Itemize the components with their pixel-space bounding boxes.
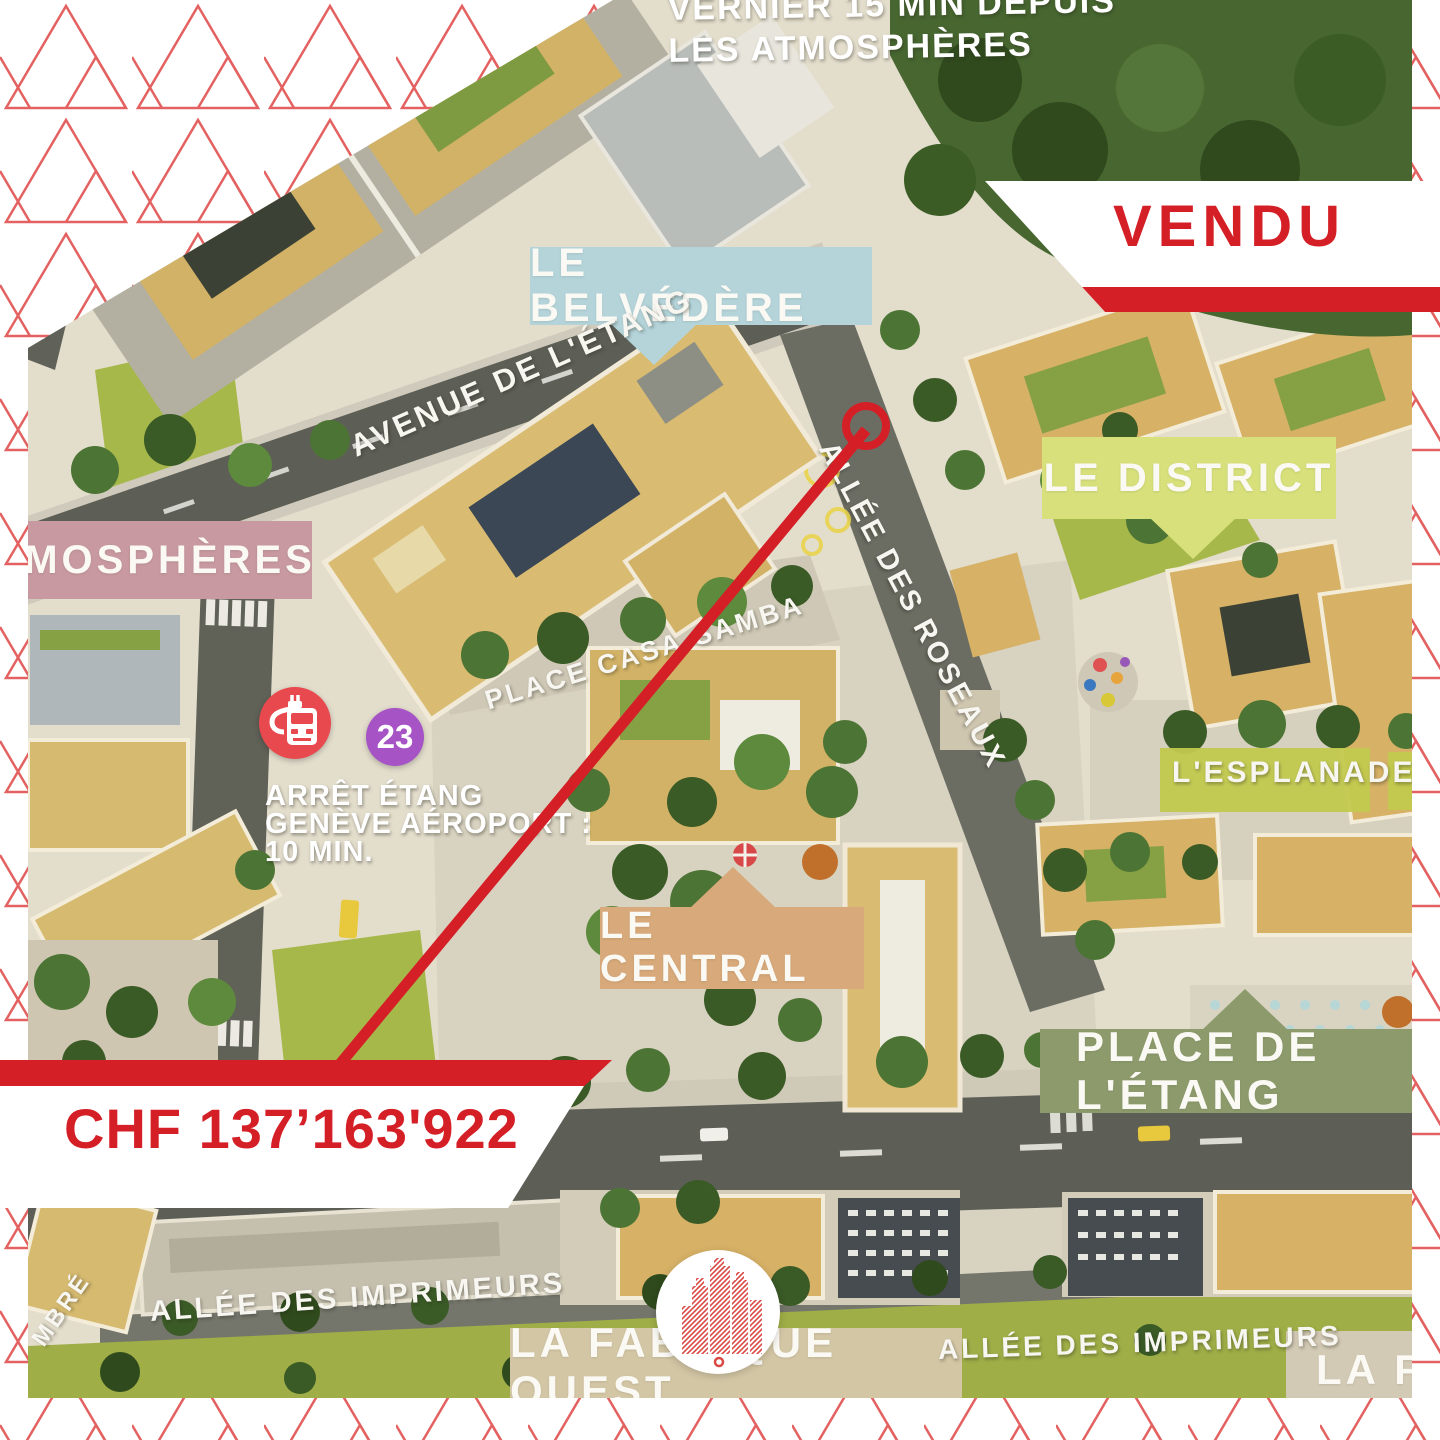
bus-icon	[259, 687, 331, 759]
tag-label: LE BELVÉDÈRE	[530, 241, 872, 331]
bus-line-23-badge: 23	[366, 708, 424, 766]
tag-label: LE CENTRAL	[600, 905, 864, 991]
tag-place-de-letang: PLACE DE L'ÉTANG	[1040, 1029, 1412, 1113]
price-bar	[0, 1060, 612, 1086]
logo-towers-icon	[656, 1250, 780, 1374]
tag-pointer	[689, 867, 777, 909]
tag-label: PLACE DE L'ÉTANG	[1076, 1023, 1412, 1119]
tag-label: LA FA	[1316, 1346, 1412, 1394]
travel-time-caption: VERNIER 15 MIN DEPUIS LES ATMOSPHÈRES	[667, 0, 1117, 72]
bus-stop-text: ARRÊT ÉTANG GENÈVE AÉROPORT : 10 MIN.	[265, 782, 592, 866]
tag-les-atmospheres: MOSPHÈRES	[28, 521, 312, 599]
marketing-map-image: VERNIER 15 MIN DEPUIS LES ATMOSPHÈRES LE…	[0, 0, 1440, 1440]
tag-pointer	[1149, 517, 1237, 559]
bus-stop-line3: 10 MIN.	[265, 838, 592, 866]
tag-le-district: LE DISTRICT	[1042, 437, 1336, 519]
tag-pointer	[1201, 989, 1289, 1031]
price-label: CHF 137’163'922	[64, 1096, 519, 1161]
electric-bus-stop-icon	[259, 687, 331, 759]
tag-label: MOSPHÈRES	[28, 538, 316, 583]
tag-le-belvedere: LE BELVÉDÈRE	[530, 247, 872, 325]
street-label-esplanade: L'ESPLANADE	[1172, 756, 1412, 790]
bus-stop-line1: ARRÊT ÉTANG	[265, 782, 592, 810]
vendu-label: VENDU	[1113, 193, 1346, 260]
tag-le-central: LE CENTRAL	[600, 907, 864, 989]
bus-line-number: 23	[377, 718, 414, 756]
bus-stop-line2: GENÈVE AÉROPORT :	[265, 810, 592, 838]
developer-logo	[656, 1250, 780, 1374]
travel-time-line2: LES ATMOSPHÈRES	[668, 22, 1117, 72]
tag-label: LE DISTRICT	[1044, 456, 1335, 501]
